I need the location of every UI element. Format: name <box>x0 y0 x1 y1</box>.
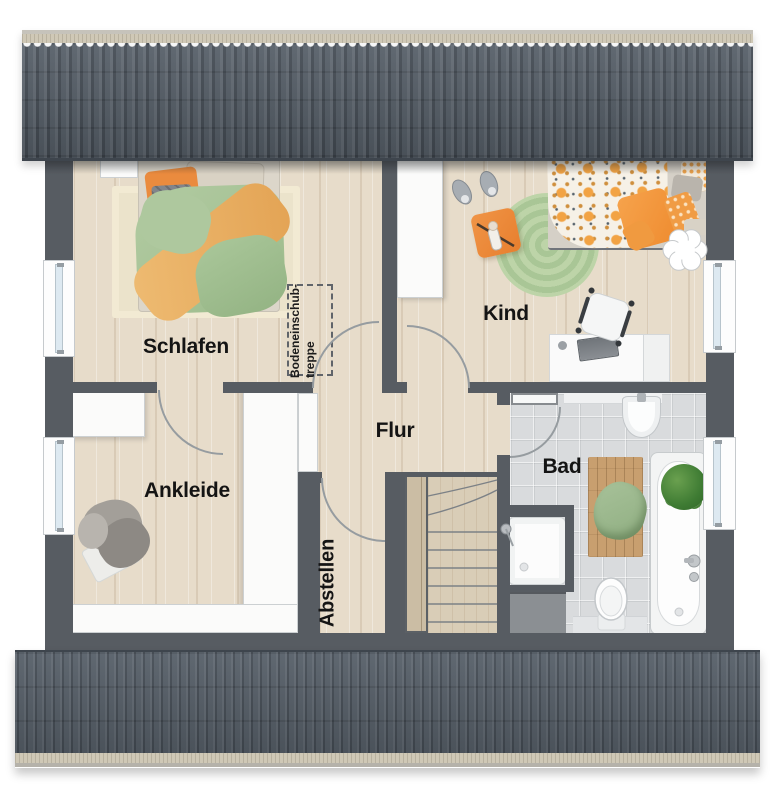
wall-shower-east <box>565 505 574 592</box>
utility-block <box>503 592 566 633</box>
room-label-schlafen: Schlafen <box>143 335 229 359</box>
window-handle <box>715 346 722 350</box>
kids-pillow-beige <box>684 219 708 235</box>
sideboard-ankleide <box>66 604 298 633</box>
roof-tiles <box>22 43 753 161</box>
hall-cabinet <box>298 393 318 472</box>
window-kind <box>703 260 736 353</box>
floor-plan: Bodeneinschub- treppe <box>0 0 775 796</box>
toy-pillow <box>470 207 522 259</box>
wall-left <box>45 158 73 650</box>
desk-mug <box>558 341 567 350</box>
roof-shadow <box>45 160 734 174</box>
wardrobe-kind <box>397 160 443 298</box>
wardrobe-ankleide-small <box>66 389 145 437</box>
roof-ridge-line <box>15 763 760 767</box>
desk-cabinet <box>643 334 670 382</box>
window-schlafen <box>43 260 75 357</box>
wardrobe-ankleide-tall <box>243 389 298 633</box>
wall-shower-south <box>497 585 573 592</box>
window-handle <box>715 523 722 527</box>
wall-schlafen-kind <box>382 158 397 393</box>
window-bad <box>703 437 736 530</box>
wall-kind-door-jamb <box>397 382 407 393</box>
wall-schlafen-ankleide-west <box>73 382 157 393</box>
wall-shower-north <box>497 505 573 517</box>
window-glass <box>55 441 63 531</box>
room-label-ankleide: Ankleide <box>144 479 230 503</box>
wall-bad-west-jamb <box>497 393 510 405</box>
stairs <box>428 477 497 637</box>
wall-bad-west <box>497 455 510 637</box>
roof-top <box>22 30 753 161</box>
wall-abstellen-stairs <box>385 472 405 637</box>
roof-tile-scallops <box>22 43 753 52</box>
roof-fascia <box>22 34 753 43</box>
roof-bottom <box>15 650 760 768</box>
window-handle <box>57 440 64 444</box>
roof-tiles <box>15 650 760 753</box>
roof-fascia <box>15 753 760 763</box>
window-glass <box>713 441 721 526</box>
wall-schlafen-ankleide-east <box>223 382 313 393</box>
window-glass <box>55 264 63 353</box>
room-label-kind: Kind <box>483 302 529 326</box>
plant <box>661 464 707 510</box>
stair-top-edge <box>405 472 497 477</box>
window-glass <box>713 264 721 349</box>
shower-tray <box>508 517 566 585</box>
room-label-abstellen: Abstellen <box>317 539 340 627</box>
window-handle <box>57 528 64 532</box>
wall-kind-bad <box>468 382 706 393</box>
window-handle <box>715 263 722 267</box>
window-ankleide <box>43 437 75 535</box>
room-label-bad: Bad <box>542 455 581 479</box>
towel-rail <box>511 393 558 405</box>
stair-railing <box>405 472 428 633</box>
sink-faucet <box>637 393 646 402</box>
attic-stairs-label-line1: Bodeneinschub- <box>288 284 303 378</box>
attic-stairs-label-line2: treppe <box>303 284 318 378</box>
toilet-platform <box>573 616 647 634</box>
wall-right <box>706 158 734 650</box>
attic-stairs-label: Bodeneinschub- treppe <box>288 284 318 378</box>
room-label-flur: Flur <box>376 419 415 443</box>
window-handle <box>57 263 64 267</box>
window-handle <box>715 440 722 444</box>
window-handle <box>57 350 64 354</box>
wall-abstellen-stub <box>298 472 322 483</box>
